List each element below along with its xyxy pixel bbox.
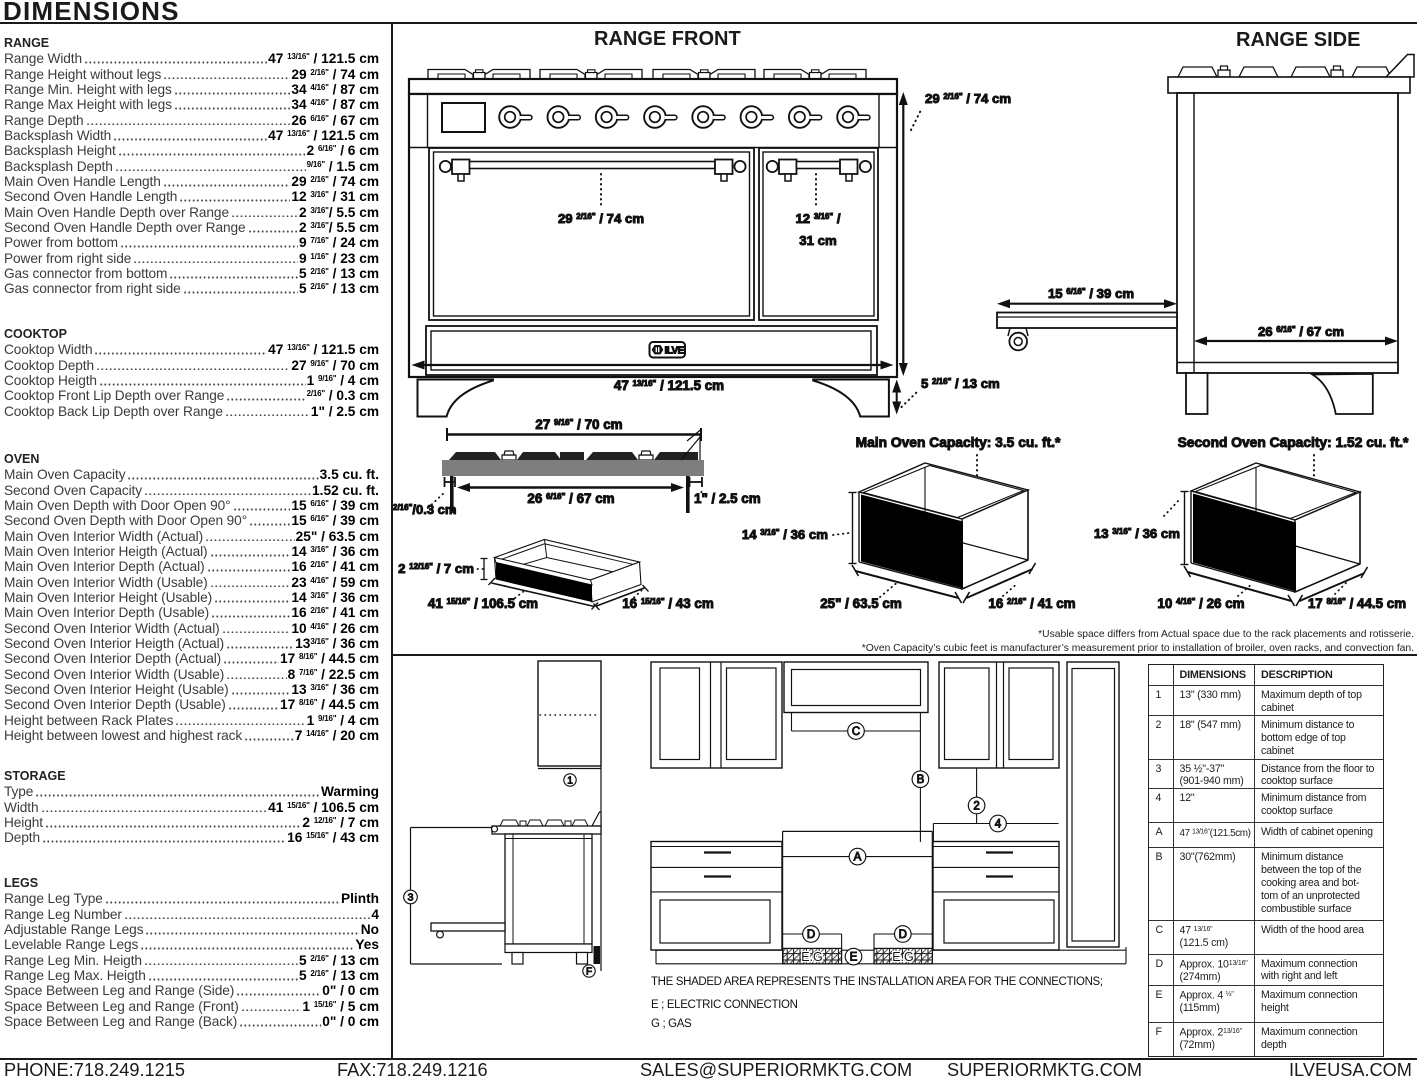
- svg-text:E: E: [850, 952, 858, 964]
- svg-text:Main Oven Capacity: 3.5 cu. ft: Main Oven Capacity: 3.5 cu. ft.*: [856, 435, 1061, 450]
- svg-text:2 12/16" / 7 cm: 2 12/16" / 7 cm: [398, 561, 474, 576]
- svg-text:29 2/16" / 74 cm: 29 2/16" / 74 cm: [558, 211, 644, 226]
- svg-text:14 3/16" / 36 cm: 14 3/16" / 36 cm: [742, 527, 828, 542]
- svg-text:15 6/16" / 39 cm: 15 6/16" / 39 cm: [1048, 286, 1134, 301]
- svg-text:1" / 2.5 cm: 1" / 2.5 cm: [694, 491, 761, 506]
- svg-text:25" / 63.5 cm: 25" / 63.5 cm: [820, 596, 902, 611]
- svg-text:16 2/16" / 41 cm: 16 2/16" / 41 cm: [988, 596, 1075, 611]
- svg-text:17 8/16" / 44.5 cm: 17 8/16" / 44.5 cm: [1308, 596, 1406, 611]
- svg-text:5 2/16" / 13 cm: 5 2/16" / 13 cm: [921, 376, 1000, 391]
- svg-text:3: 3: [408, 892, 414, 904]
- svg-text:47 13/16" / 121.5 cm: 47 13/16" / 121.5 cm: [614, 378, 724, 393]
- svg-text:D: D: [899, 929, 907, 941]
- svg-text:10 4/16" / 26 cm: 10 4/16" / 26 cm: [1157, 596, 1244, 611]
- svg-text:Second Oven Capacity: 1.52 cu.: Second Oven Capacity: 1.52 cu. ft.*: [1178, 435, 1409, 450]
- svg-text:16 15/16" / 43 cm: 16 15/16" / 43 cm: [622, 596, 714, 611]
- svg-text:26 6/16" / 67 cm: 26 6/16" / 67 cm: [1258, 324, 1344, 339]
- svg-text:B: B: [917, 774, 925, 786]
- svg-text:E.G: E.G: [801, 950, 823, 964]
- svg-text:C: C: [852, 726, 860, 738]
- svg-text:2: 2: [973, 801, 979, 813]
- svg-text:ILVE: ILVE: [665, 345, 685, 356]
- svg-text:29 2/16" / 74 cm: 29 2/16" / 74 cm: [925, 91, 1011, 106]
- svg-text:41 15/16" / 106.5 cm: 41 15/16" / 106.5 cm: [428, 596, 538, 611]
- svg-text:4: 4: [995, 819, 1002, 831]
- svg-text:27 9/16" / 70 cm: 27 9/16" / 70 cm: [535, 417, 622, 432]
- svg-text:13 3/16" / 36 cm: 13 3/16" / 36 cm: [1094, 526, 1180, 541]
- svg-text:31 cm: 31 cm: [799, 233, 836, 248]
- svg-text:D: D: [807, 929, 815, 941]
- svg-text:26 6/16" / 67 cm: 26 6/16" / 67 cm: [527, 491, 614, 506]
- svg-text:E.G: E.G: [892, 950, 914, 964]
- svg-text:2/16"/0.3 cm: 2/16"/0.3 cm: [393, 502, 456, 517]
- svg-text:F: F: [586, 967, 592, 978]
- svg-text:A: A: [854, 852, 862, 864]
- svg-text:1: 1: [567, 776, 573, 787]
